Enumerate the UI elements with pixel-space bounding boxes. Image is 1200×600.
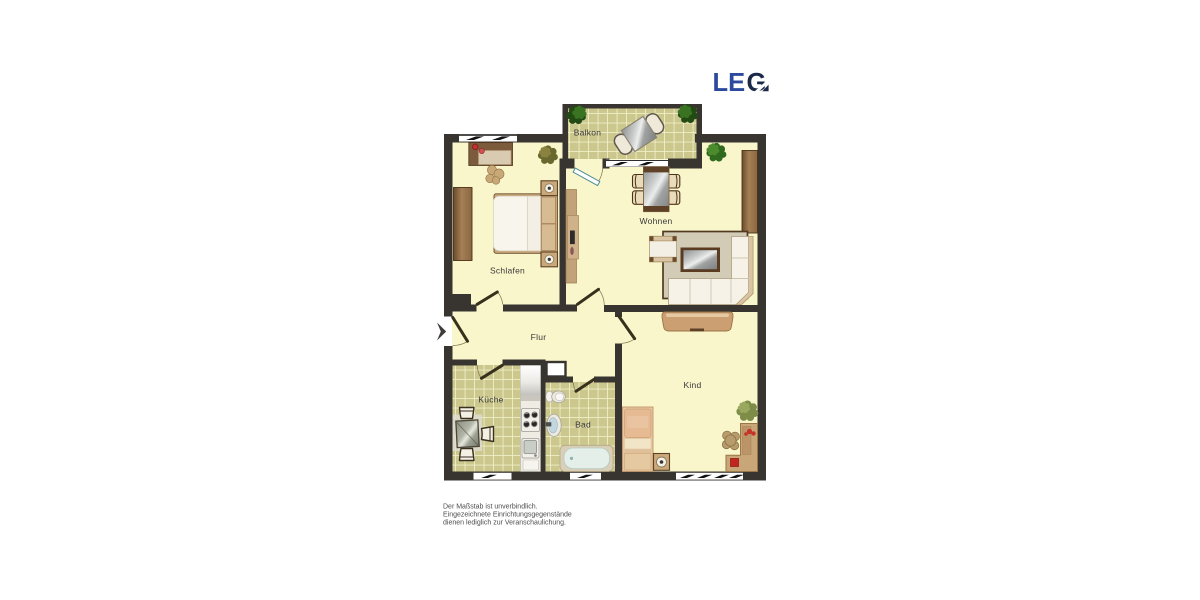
svg-text:Küche: Küche <box>478 395 503 405</box>
svg-text:Balkon: Balkon <box>574 128 602 138</box>
svg-text:Wohnen: Wohnen <box>639 216 672 226</box>
svg-text:LE: LE <box>713 69 746 97</box>
svg-text:Eingezeichnete Einrichtungsgeg: Eingezeichnete Einrichtungsgegenstände <box>443 512 572 519</box>
svg-text:Flur: Flur <box>531 332 547 342</box>
svg-text:Schlafen: Schlafen <box>490 266 525 276</box>
svg-text:Der Maßstab ist unverbindlich.: Der Maßstab ist unverbindlich. <box>443 504 538 511</box>
svg-text:Bad: Bad <box>575 420 591 430</box>
svg-text:dienen lediglich zur Veranscha: dienen lediglich zur Veranschaulichung. <box>443 520 566 527</box>
svg-text:Kind: Kind <box>683 380 701 390</box>
